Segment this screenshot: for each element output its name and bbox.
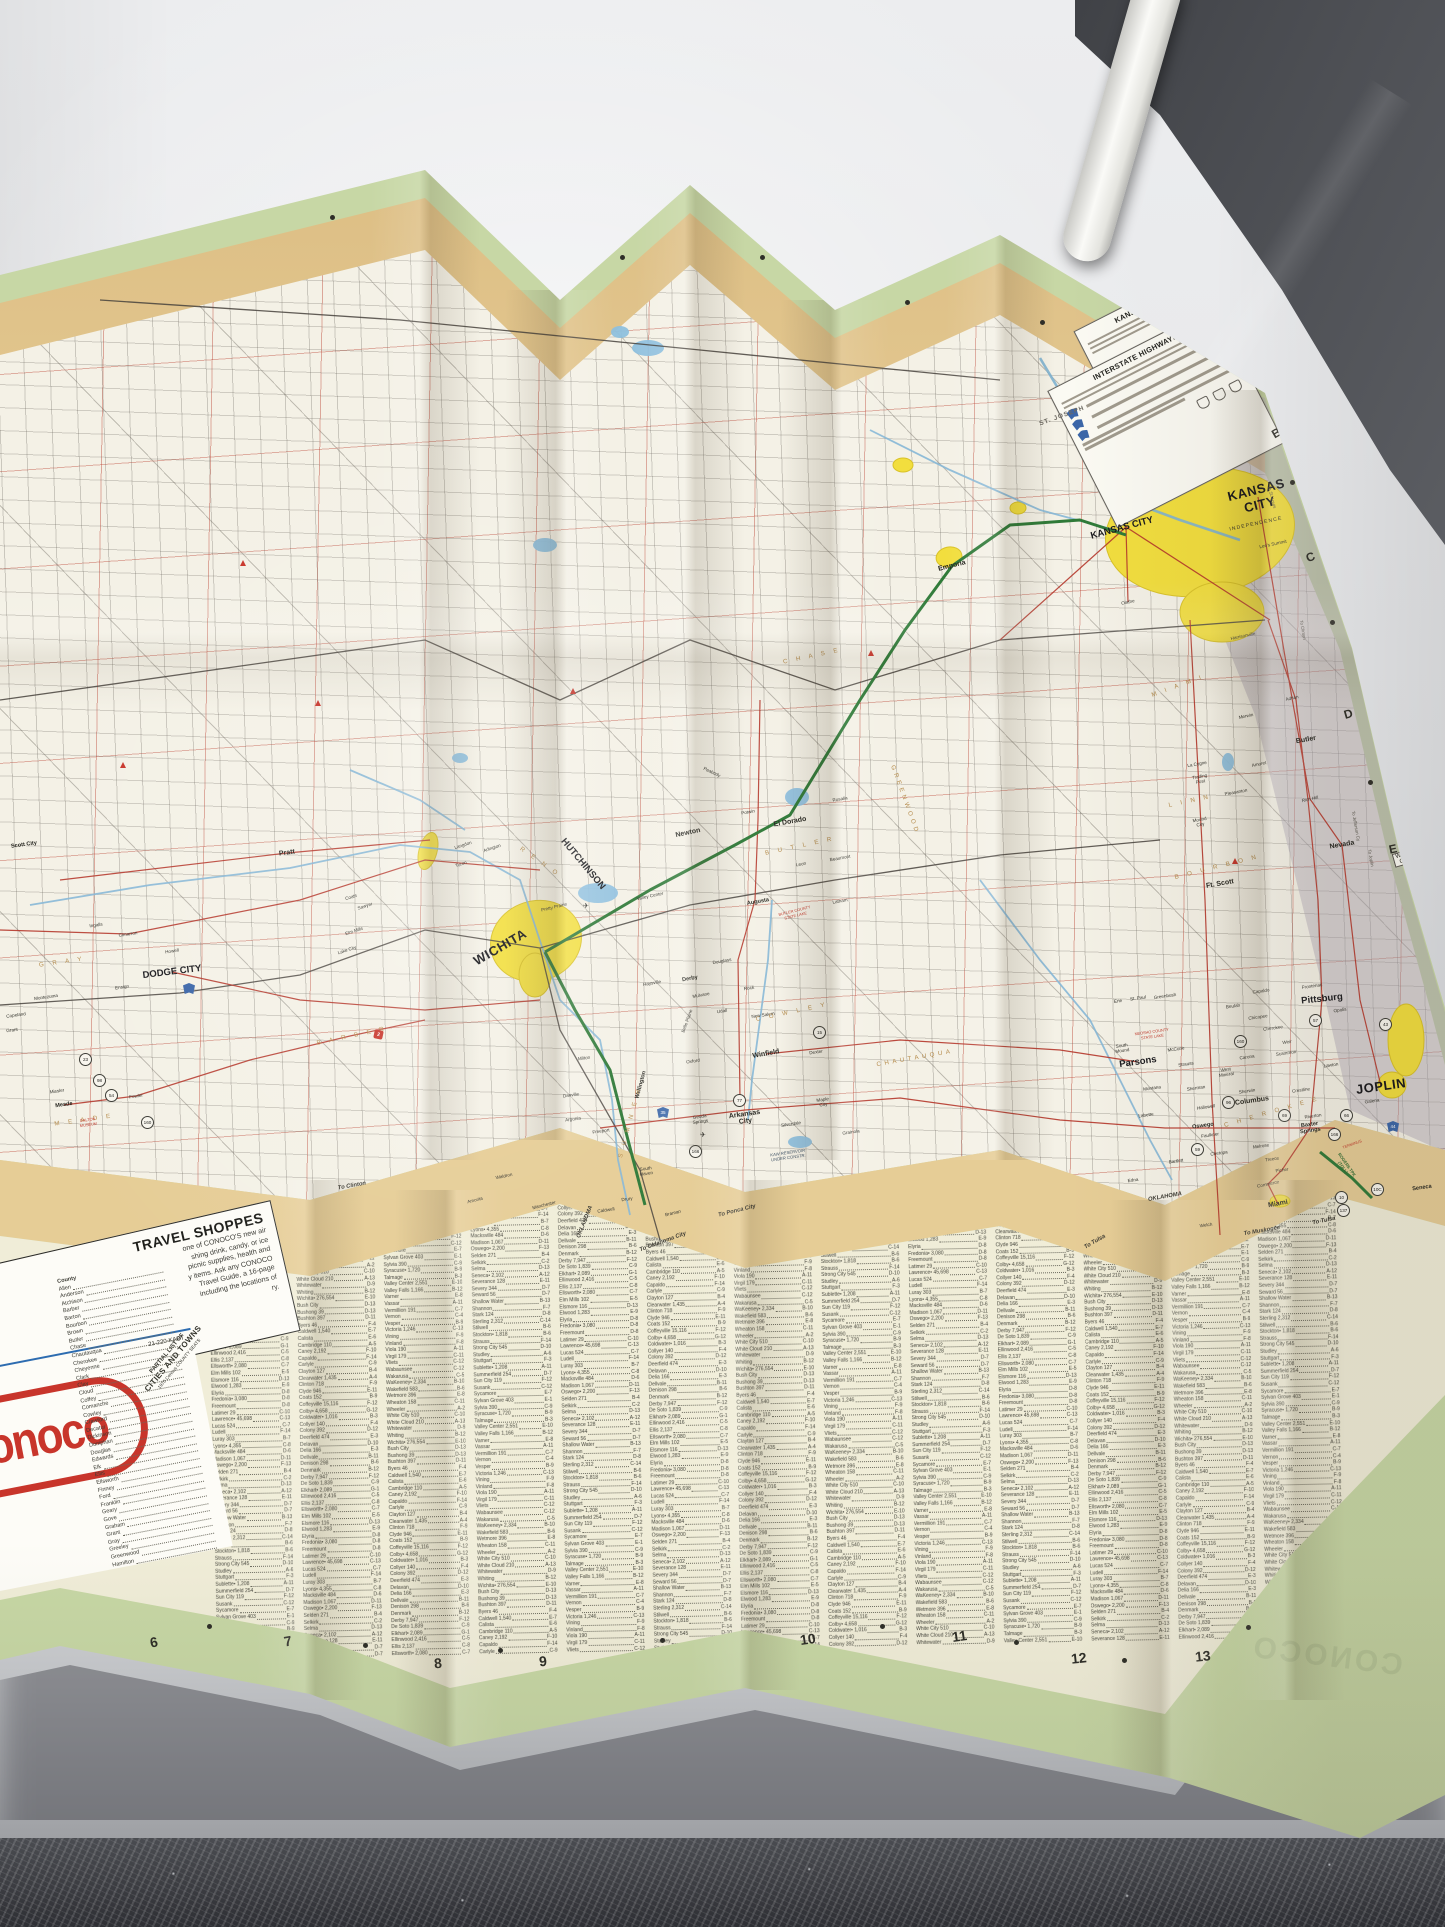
photo-of-folded-road-map: Bush CityD-13Bushong 39D-13Bushton 397D-… — [0, 0, 1445, 1927]
metallic-foreground-strip — [0, 1838, 1445, 1927]
